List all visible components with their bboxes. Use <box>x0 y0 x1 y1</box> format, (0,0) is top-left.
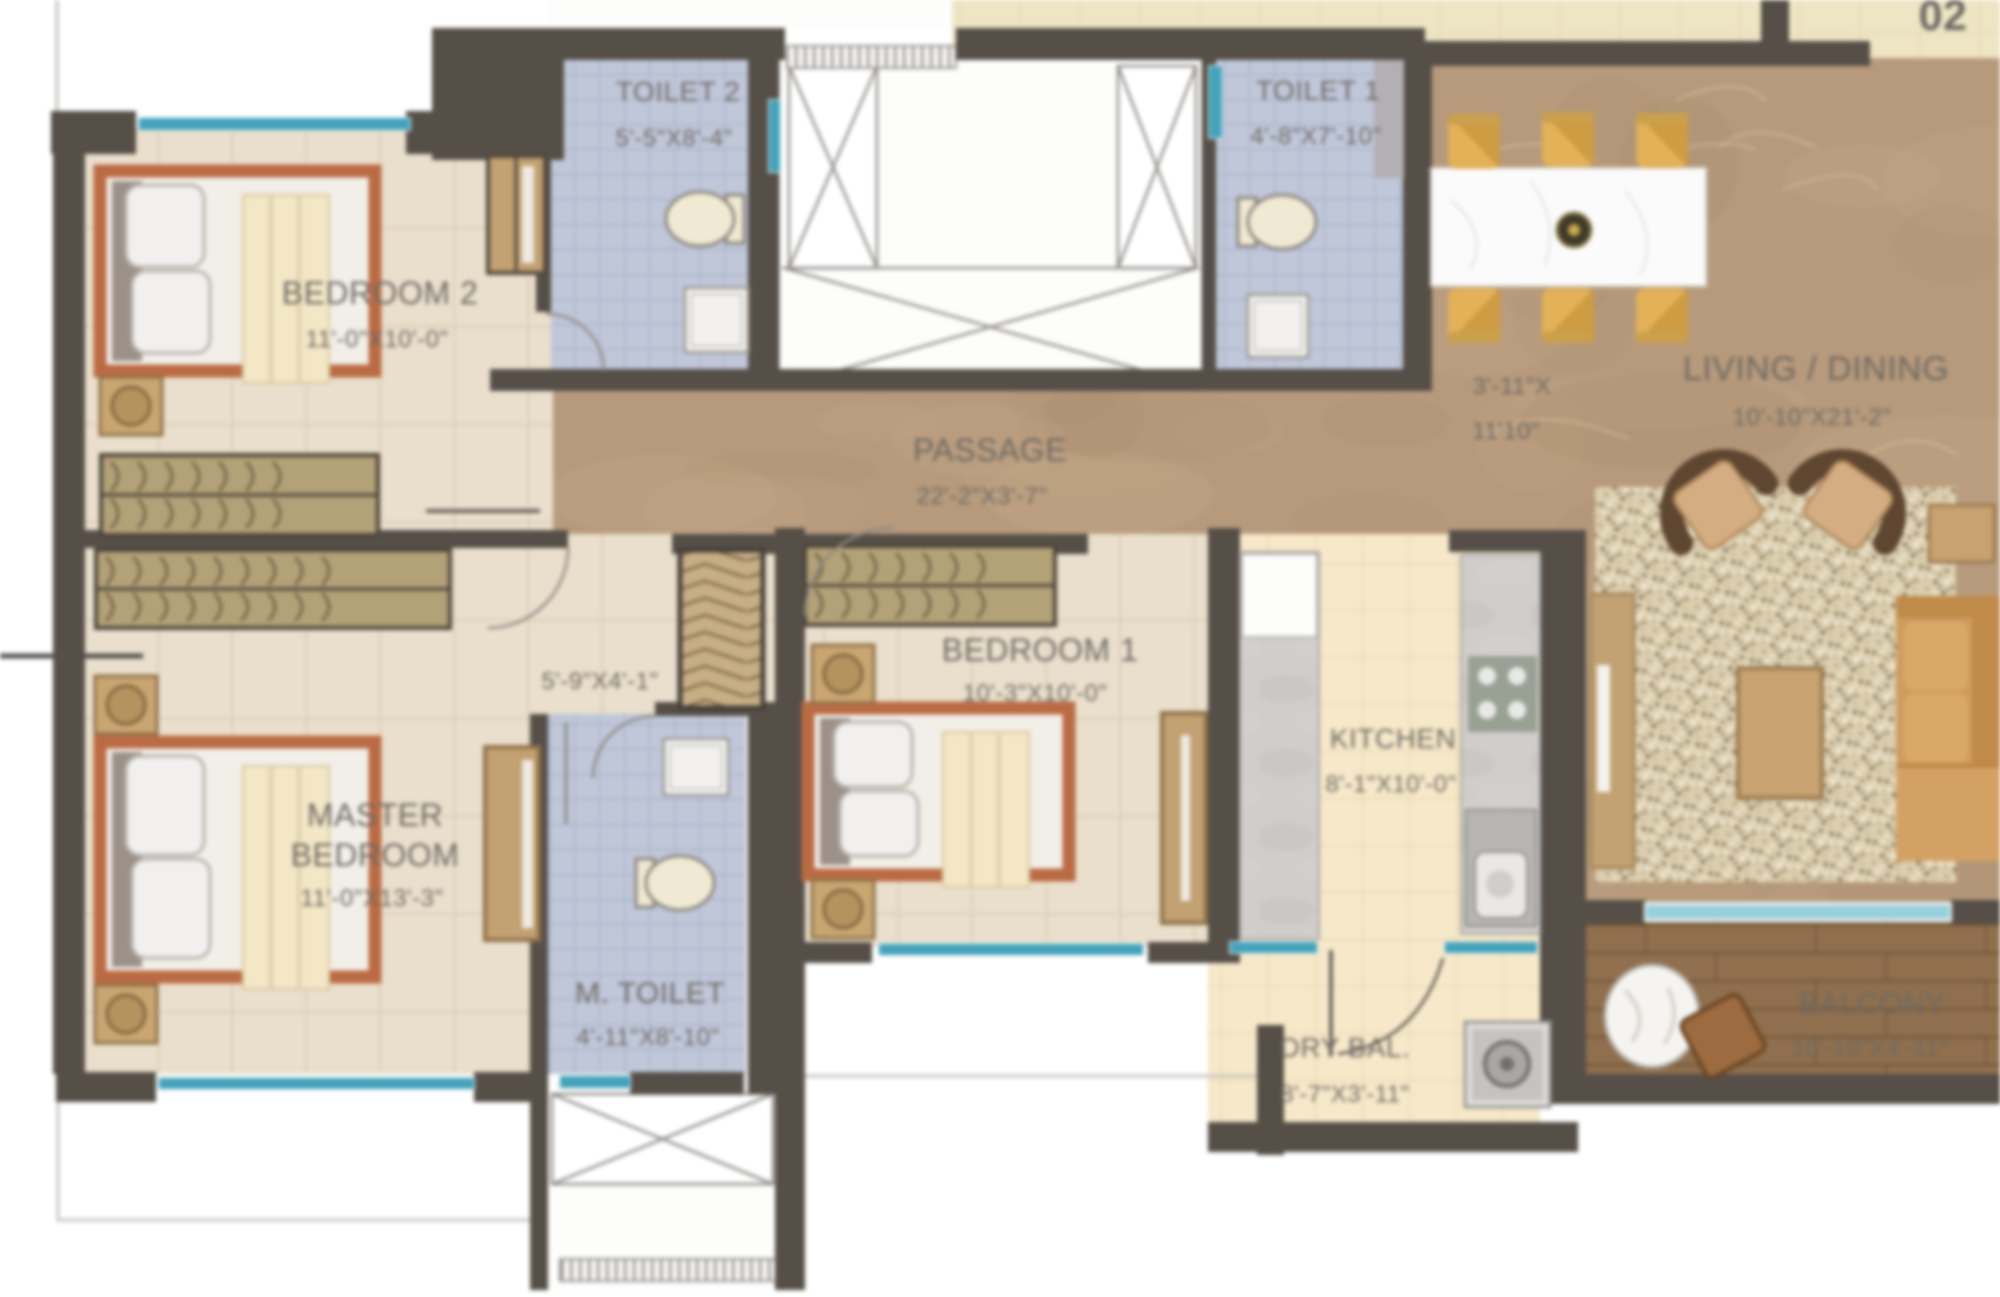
svg-text:8'-7"X3'-11": 8'-7"X3'-11" <box>1280 1081 1409 1108</box>
svg-text:BEDROOM 2: BEDROOM 2 <box>282 275 479 311</box>
svg-text:10'-10"X21'-2": 10'-10"X21'-2" <box>1733 404 1892 431</box>
svg-text:10'-10"X4'-11": 10'-10"X4'-11" <box>1792 1035 1949 1062</box>
svg-text:TOILET 1: TOILET 1 <box>1256 75 1380 106</box>
svg-text:5'-5"X8'-4": 5'-5"X8'-4" <box>615 125 732 152</box>
svg-text:22'-2"X3'-7": 22'-2"X3'-7" <box>917 483 1048 510</box>
svg-text:4'-8"X7'-10": 4'-8"X7'-10" <box>1251 123 1382 150</box>
svg-text:3'-11"X: 3'-11"X <box>1473 373 1552 400</box>
svg-text:5'-9"X4'-1": 5'-9"X4'-1" <box>541 668 658 695</box>
svg-text:4'-11"X8'-10": 4'-11"X8'-10" <box>577 1024 720 1051</box>
svg-text:TOILET 2: TOILET 2 <box>616 76 740 107</box>
svg-text:02: 02 <box>1919 0 1968 40</box>
svg-text:KITCHEN: KITCHEN <box>1330 723 1456 754</box>
svg-text:DRY BAL.: DRY BAL. <box>1280 1032 1411 1063</box>
svg-text:11'-0"X13'-3": 11'-0"X13'-3" <box>301 885 444 912</box>
svg-text:BEDROOM: BEDROOM <box>291 837 460 873</box>
svg-text:PASSAGE: PASSAGE <box>913 432 1067 468</box>
svg-text:BALCONY: BALCONY <box>1799 988 1946 1021</box>
svg-text:LIVING / DINING: LIVING / DINING <box>1683 350 1949 388</box>
svg-text:BEDROOM 1: BEDROOM 1 <box>942 632 1139 668</box>
svg-text:M. TOILET: M. TOILET <box>575 977 725 1010</box>
svg-text:MASTER: MASTER <box>307 797 443 833</box>
svg-text:8'-1"X10'-0": 8'-1"X10'-0" <box>1326 771 1457 798</box>
svg-text:11'10": 11'10" <box>1472 418 1540 445</box>
svg-text:10'-3"X10'-0": 10'-3"X10'-0" <box>963 680 1108 707</box>
svg-text:11'-0"X10'-0": 11'-0"X10'-0" <box>306 326 449 353</box>
